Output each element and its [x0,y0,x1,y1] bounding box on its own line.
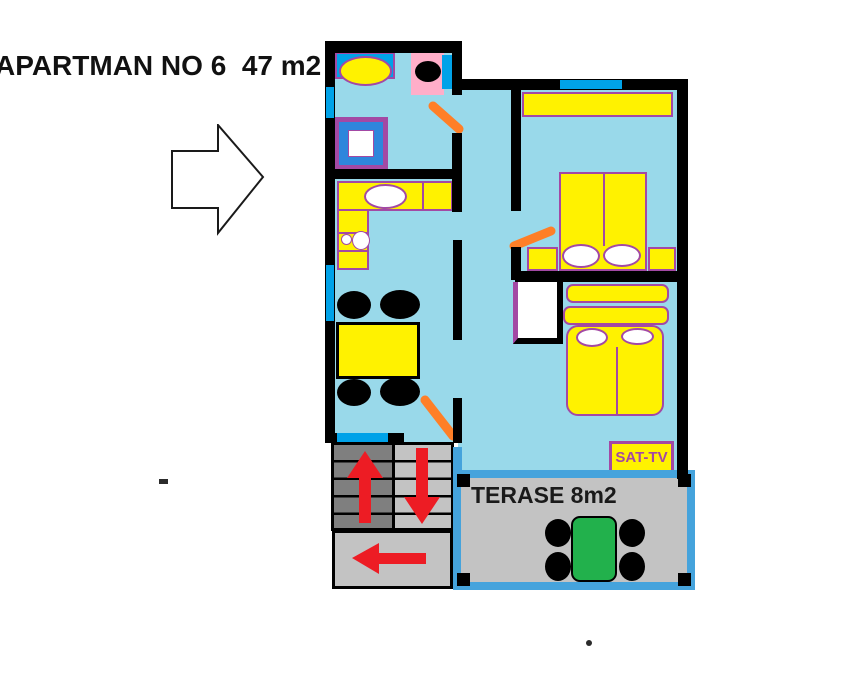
shelf-upper [566,284,669,303]
nightstand-right [648,247,676,271]
wall-bathroom-bottom [325,169,462,179]
stairs-up-arrow [347,451,383,523]
terrace-chair [619,552,645,581]
door-swing-bathroom [433,106,459,129]
stairs-exit-arrow [352,543,426,574]
terrace-chair [619,519,645,547]
sat-tv-badge: SAT-TV [609,441,674,473]
wall-top-left [325,41,462,53]
window-living-bottom [337,433,388,442]
wall-bedroom1-left-upper [511,90,521,211]
stairs-down-arrow [404,448,440,524]
wardrobe [522,92,673,117]
terrace-chair [545,519,571,547]
closet [513,282,563,344]
stray-mark [586,640,592,646]
terrace-corner [457,573,470,586]
door-swing-bedroom1 [514,231,551,246]
window-living-left [326,265,334,321]
pillow [621,328,654,345]
window-bathroom [326,87,334,118]
terrace-label: TERASE 8m2 [471,482,617,509]
direction-arrow [171,124,265,239]
pillow [603,244,641,267]
terrace: TERASE 8m2 [453,470,695,590]
terrace-corner [457,474,470,487]
stray-mark [159,479,168,484]
wall-corridor-right-lower [453,398,462,443]
terrace-corner [678,573,691,586]
wall-bottom-stub [387,433,404,443]
pillow [576,328,608,347]
nightstand-left [527,247,558,271]
bed-divider [603,174,605,246]
window-bedroom1 [560,80,622,89]
shelf-lower [563,306,669,325]
wall-corridor-right-upper [453,240,462,340]
pillow [562,244,600,268]
bed-divider [616,347,618,416]
terrace-table [571,516,617,582]
page-title: APARTMAN NO 6 47 m2 [0,50,321,82]
door-swing-entry [425,400,453,436]
terrace-chair [545,552,571,581]
wall-bedroom-divider [515,271,688,282]
